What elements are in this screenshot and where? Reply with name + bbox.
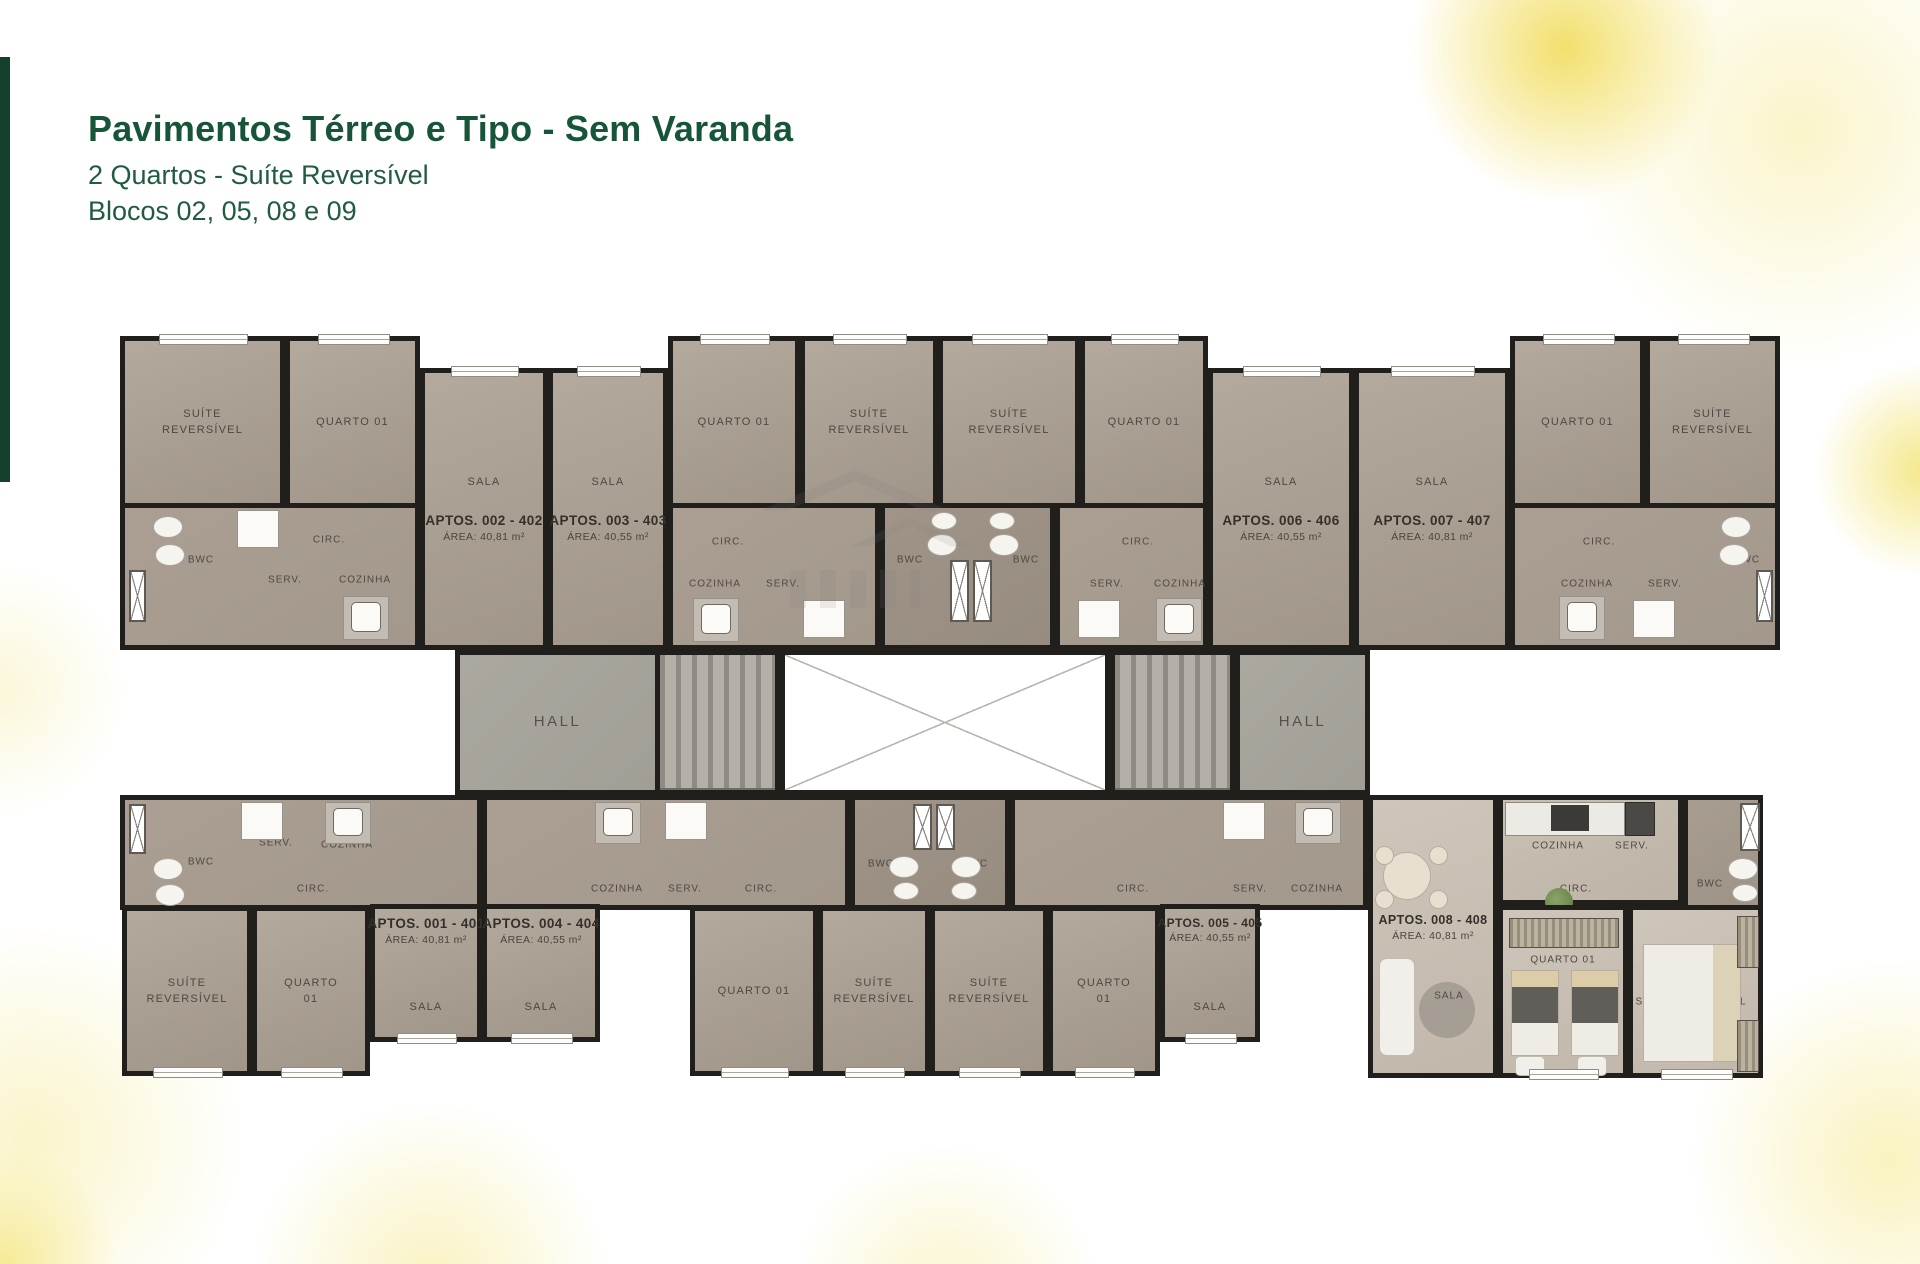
washer-icon: [1078, 600, 1120, 638]
apartment-area: ÁREA: 40,81 m²: [425, 530, 542, 544]
apt001-quarto-01: QUARTO 01: [252, 906, 370, 1076]
apt007-suite-reversivel: SUÍTE REVERSÍVEL: [1645, 336, 1780, 508]
room-label: SUÍTE REVERSÍVEL: [1668, 406, 1758, 439]
room-label: SUÍTE REVERSÍVEL: [158, 406, 248, 439]
washer-icon: [237, 510, 279, 548]
apt008-suite-reversivel: SUÍTE REVERSÍVEL: [1628, 905, 1763, 1078]
apartment-number: APTOS. 001 - 401: [367, 915, 484, 933]
washer-icon: [665, 802, 707, 840]
apt008-bwc: BWC: [1683, 795, 1763, 910]
room-label: CIRC.: [712, 537, 744, 548]
apartment-number: APTOS. 006 - 406: [1222, 512, 1339, 530]
apartment-label: APTOS. 005 - 405 ÁREA: 40,55 m²: [1158, 915, 1263, 945]
room-label: COZINHA: [591, 884, 643, 895]
apt002-service-area: BWC CIRC. SERV. COZINHA: [120, 503, 420, 650]
kitchen-sink-icon: [343, 596, 389, 640]
apartment-label: APTOS. 007 - 407 ÁREA: 40,81 m²: [1373, 512, 1490, 544]
apt005-sala: APTOS. 005 - 405 ÁREA: 40,55 m² SALA: [1160, 904, 1260, 1042]
room-label: COZINHA: [339, 575, 391, 586]
apt002-quarto-01: QUARTO 01: [285, 336, 420, 508]
room-label: SERV.: [1615, 841, 1649, 852]
room-label: SALA: [1194, 999, 1227, 1016]
armchair: [1515, 1056, 1545, 1076]
washer-icon: [1223, 802, 1265, 840]
dining-chair: [1429, 890, 1448, 909]
room-label: CIRC.: [1122, 537, 1154, 548]
page-blocks-line: Blocos 02, 05, 08 e 09: [88, 196, 357, 227]
single-bed: [1511, 970, 1559, 1056]
apt004-service-area: COZINHA SERV. CIRC.: [482, 795, 850, 910]
room-label: QUARTO 01: [316, 414, 389, 431]
open-shaft: [780, 650, 1110, 795]
center-bwc-cluster-bottom: BWC BWC: [850, 795, 1010, 910]
room-label: SALA: [1265, 474, 1298, 491]
apt004-suite-reversivel: SUÍTE REVERSÍVEL: [818, 906, 930, 1076]
room-label: BWC: [188, 555, 214, 566]
apt005-suite-reversivel: SUÍTE REVERSÍVEL: [930, 906, 1048, 1076]
shower-stall-icon: [936, 804, 955, 850]
toilet-icon: [889, 856, 919, 878]
apartment-label: APTOS. 008 - 408 ÁREA: 40,81 m²: [1379, 912, 1488, 943]
apartment-label: APTOS. 003 - 403 ÁREA: 40,55 m²: [549, 512, 666, 544]
apt001-sala: APTOS. 001 - 401 ÁREA: 40,81 m² SALA: [370, 904, 482, 1042]
kitchen-sink-icon: [325, 802, 371, 844]
kitchen-sink-icon: [1295, 802, 1341, 844]
sink-icon: [893, 882, 919, 900]
room-label: QUARTO 01: [1108, 414, 1181, 431]
apartment-label: APTOS. 002 - 402 ÁREA: 40,81 m²: [425, 512, 542, 544]
room-label: COZINHA: [1291, 884, 1343, 895]
toilet-icon: [1719, 544, 1749, 566]
room-label: SUÍTE REVERSÍVEL: [944, 975, 1034, 1008]
sink-icon: [951, 882, 977, 900]
apartment-number: APTOS. 007 - 407: [1373, 512, 1490, 530]
apt002-suite-reversivel: SUÍTE REVERSÍVEL: [120, 336, 285, 508]
apt007-service-area: CIRC. COZINHA SERV. BWC: [1510, 503, 1780, 650]
apartment-area: ÁREA: 40,81 m²: [367, 933, 484, 947]
kitchen-sink-icon: [693, 598, 739, 642]
hall-left: HALL: [455, 650, 660, 795]
room-label: BWC: [1013, 555, 1039, 566]
dining-chair: [1429, 846, 1448, 865]
room-label: SUÍTE REVERSÍVEL: [964, 406, 1054, 439]
room-label: SERV.: [268, 575, 302, 586]
washer-icon: [1633, 600, 1675, 638]
toilet-icon: [153, 516, 183, 538]
shower-stall-icon: [973, 560, 992, 622]
wardrobe: [1509, 918, 1619, 948]
room-label: SALA: [525, 999, 558, 1016]
room-label: QUARTO 01: [1069, 975, 1139, 1008]
apartment-number: APTOS. 008 - 408: [1379, 912, 1488, 929]
room-label: BWC: [1697, 879, 1723, 890]
apartment-area: ÁREA: 40,55 m²: [1222, 530, 1339, 544]
armchair: [1577, 1056, 1607, 1076]
room-label: SALA: [410, 999, 443, 1016]
apartment-area: ÁREA: 40,81 m²: [1379, 929, 1488, 943]
room-label: SUÍTE REVERSÍVEL: [829, 975, 919, 1008]
apt006-quarto-01: QUARTO 01: [1080, 336, 1208, 508]
apartment-label: APTOS. 004 - 404 ÁREA: 40,55 m²: [482, 915, 599, 947]
apartment-number: APTOS. 002 - 402: [425, 512, 542, 530]
dining-chair: [1375, 846, 1394, 865]
apt005-quarto-01: QUARTO 01: [1048, 906, 1160, 1076]
fridge-icon: [1625, 802, 1655, 836]
apt003-sala: SALA APTOS. 003 - 403 ÁREA: 40,55 m²: [548, 368, 668, 650]
room-label: QUARTO 01: [276, 975, 346, 1008]
room-label: CIRC.: [313, 535, 345, 546]
single-bed: [1571, 970, 1619, 1056]
room-label: SERV.: [668, 884, 702, 895]
room-label: COZINHA: [689, 579, 741, 590]
apt008-service-area: COZINHA SERV. CIRC.: [1498, 795, 1683, 905]
accent-bar: [0, 57, 10, 482]
wardrobe: [1737, 1020, 1759, 1072]
apt008-quarto-01: QUARTO 01: [1498, 905, 1628, 1078]
toilet-icon: [1721, 516, 1751, 538]
toilet-icon: [153, 858, 183, 880]
wardrobe: [1737, 916, 1759, 968]
apt005-service-area: CIRC. SERV. COZINHA: [1010, 795, 1368, 910]
shower-stall-icon: [1756, 570, 1773, 622]
room-label: CIRC.: [297, 884, 329, 895]
kitchen-sink-icon: [1156, 598, 1202, 642]
room-label: SUÍTE REVERSÍVEL: [824, 406, 914, 439]
room-label: SALA: [468, 474, 501, 491]
kitchen-sink-icon: [595, 802, 641, 844]
toilet-icon: [951, 856, 981, 878]
apartment-area: ÁREA: 40,81 m²: [1373, 530, 1490, 544]
shower-stall-icon: [913, 804, 932, 850]
apt002-sala: SALA APTOS. 002 - 402 ÁREA: 40,81 m²: [420, 368, 548, 650]
apt006-service-area: CIRC. SERV. COZINHA: [1055, 503, 1208, 650]
hall-right: HALL: [1235, 650, 1370, 795]
sofa: [1379, 958, 1415, 1056]
apt007-quarto-01: QUARTO 01: [1510, 336, 1645, 508]
room-label: SUÍTE REVERSÍVEL: [142, 975, 232, 1008]
apartment-label: APTOS. 006 - 406 ÁREA: 40,55 m²: [1222, 512, 1339, 544]
stove-icon: [1551, 805, 1589, 831]
toilet-icon: [989, 534, 1019, 556]
room-label: QUARTO 01: [1530, 955, 1595, 966]
apartment-area: ÁREA: 40,55 m²: [482, 933, 599, 947]
room-label: BWC: [188, 857, 214, 868]
page-title: Pavimentos Térreo e Tipo - Sem Varanda: [88, 108, 793, 150]
toilet-icon: [155, 884, 185, 906]
room-label: SALA: [592, 474, 625, 491]
sink-icon: [1732, 884, 1758, 902]
shower-stall-icon: [129, 804, 146, 854]
kitchen-sink-icon: [1559, 596, 1605, 640]
page-background: Pavimentos Térreo e Tipo - Sem Varanda 2…: [0, 0, 1920, 1264]
apartment-label: APTOS. 001 - 401 ÁREA: 40,81 m²: [367, 915, 484, 947]
sink-icon: [989, 512, 1015, 530]
apartment-number: APTOS. 005 - 405: [1158, 915, 1263, 931]
room-label: COZINHA: [1154, 579, 1206, 590]
hall-label: HALL: [534, 711, 582, 734]
apt001-service-area: BWC SERV. COZINHA CIRC.: [120, 795, 482, 910]
room-label: SALA: [1434, 991, 1464, 1002]
staircase-right: [1110, 650, 1235, 795]
apartment-number: APTOS. 003 - 403: [549, 512, 666, 530]
dining-chair: [1375, 890, 1394, 909]
room-label: QUARTO 01: [718, 983, 791, 1000]
apartment-area: ÁREA: 40,55 m²: [1158, 931, 1263, 945]
hall-label: HALL: [1279, 711, 1327, 734]
apartment-number: APTOS. 004 - 404: [482, 915, 599, 933]
apt007-sala: SALA APTOS. 007 - 407 ÁREA: 40,81 m²: [1354, 368, 1510, 650]
room-label: SERV.: [1090, 579, 1124, 590]
room-label: QUARTO 01: [1541, 414, 1614, 431]
washer-icon: [241, 802, 283, 840]
shower-stall-icon: [1740, 803, 1760, 851]
apt001-suite-reversivel: SUÍTE REVERSÍVEL: [122, 906, 252, 1076]
room-label: SALA: [1416, 474, 1449, 491]
room-label: CIRC.: [745, 884, 777, 895]
shower-stall-icon: [129, 570, 146, 622]
room-label: CIRC.: [1117, 884, 1149, 895]
watermark-logo: [760, 470, 970, 608]
staircase-left: [655, 650, 780, 795]
apt004-quarto-01: QUARTO 01: [690, 906, 818, 1076]
apt006-sala: SALA APTOS. 006 - 406 ÁREA: 40,55 m²: [1208, 368, 1354, 650]
room-label: SERV.: [1233, 884, 1267, 895]
apartment-area: ÁREA: 40,55 m²: [549, 530, 666, 544]
room-label: QUARTO 01: [698, 414, 771, 431]
page-subtitle: 2 Quartos - Suíte Reversível: [88, 160, 429, 191]
apt004-sala: APTOS. 004 - 404 ÁREA: 40,55 m² SALA: [482, 904, 600, 1042]
room-label: COZINHA: [1561, 579, 1613, 590]
room-label: CIRC.: [1583, 537, 1615, 548]
room-label: COZINHA: [1532, 841, 1584, 852]
apt008-sala: APTOS. 008 - 408 ÁREA: 40,81 m² SALA: [1368, 795, 1498, 1078]
toilet-icon: [155, 544, 185, 566]
double-bed: [1643, 944, 1741, 1062]
room-label: SERV.: [1648, 579, 1682, 590]
toilet-icon: [1728, 858, 1758, 880]
